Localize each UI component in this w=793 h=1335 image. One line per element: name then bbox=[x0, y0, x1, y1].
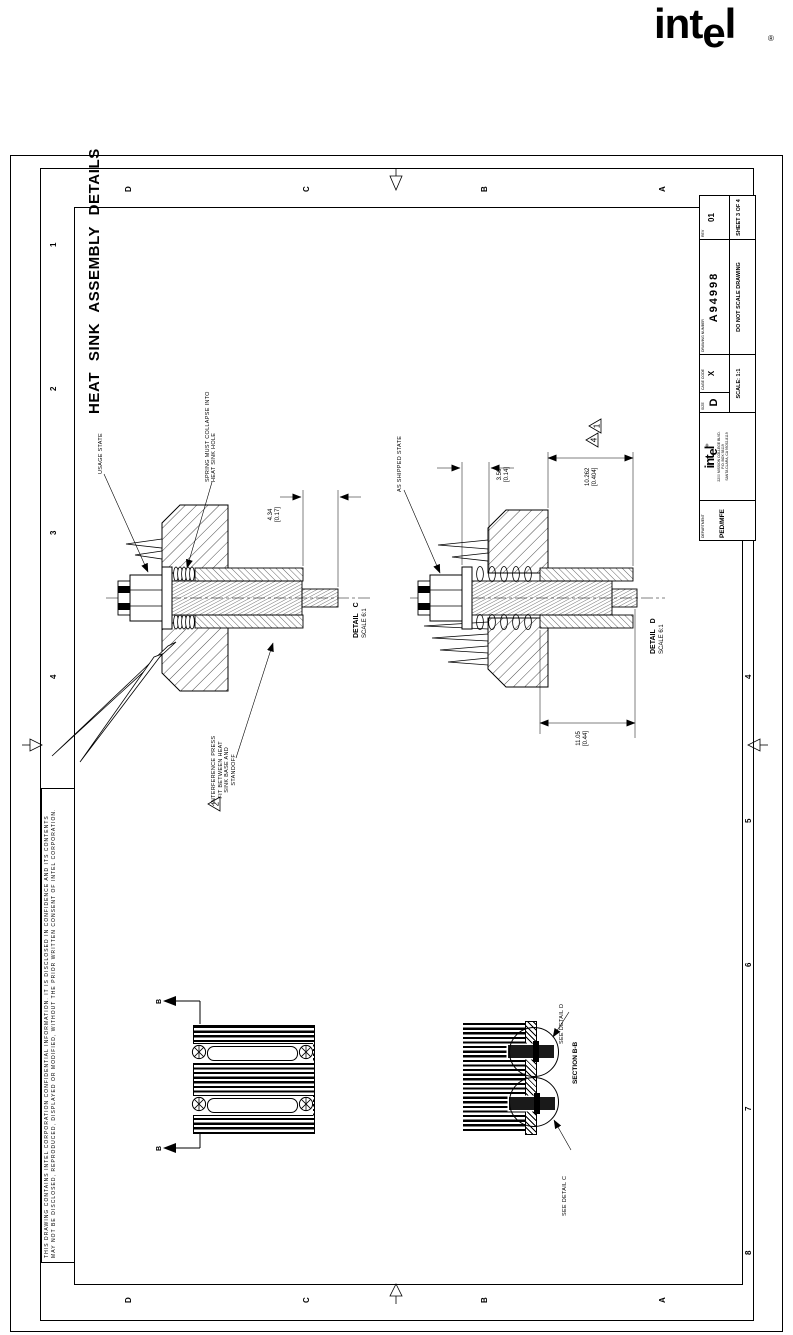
detail-c-title: DETAIL C SCALE 6:1 bbox=[353, 602, 369, 638]
title-block: DEPARTMENT PED/MFE intel® 2200 MISSION C… bbox=[699, 195, 756, 541]
cage-code-cell: CAGE CODE X bbox=[700, 354, 729, 392]
detail-d-screw-pin bbox=[612, 589, 637, 607]
detail-d-geometry: 1 4 bbox=[404, 419, 665, 738]
detail-c-name: DETAIL C bbox=[353, 602, 361, 638]
drawing-number-value: A94998 bbox=[708, 242, 720, 352]
screw-head-icon bbox=[191, 1044, 207, 1060]
drawing-number-label: DRAWING NUMBER bbox=[701, 242, 705, 352]
company-address: 2200 MISSION COLLEGE BLVD. P.O. BOX 5811… bbox=[717, 413, 730, 500]
detail-c-dim-mm: 4.34 bbox=[268, 507, 275, 522]
detail-d-title: DETAIL D SCALE 6:1 bbox=[650, 618, 666, 654]
detail-d-heatsink-base-upper bbox=[488, 510, 548, 573]
detail-d-fin bbox=[448, 658, 488, 665]
detail-d-leader-line bbox=[404, 490, 440, 573]
zone-letter-top-a: A bbox=[658, 186, 667, 192]
detail-c-head-slot bbox=[118, 586, 130, 593]
detail-d-dim-a-mm: 3.56 bbox=[497, 467, 504, 482]
screw-head-icon bbox=[191, 1096, 207, 1112]
title-block-department: DEPARTMENT PED/MFE bbox=[700, 500, 755, 540]
detail-d-screw-shaft bbox=[472, 581, 612, 615]
detail-d-name: DETAIL D bbox=[650, 618, 658, 654]
detail-d-dimension-b: 10.262 [0.404] bbox=[585, 468, 598, 486]
do-not-scale-cell: DO NOT SCALE DRAWING bbox=[730, 239, 755, 354]
drawing-number-cell: DRAWING NUMBER A94998 bbox=[700, 239, 729, 354]
detail-d-dimension-a: 3.56 [0.14] bbox=[497, 467, 510, 482]
screw-head-icon bbox=[298, 1044, 314, 1060]
detail-d-standoff-wall-bottom bbox=[540, 615, 633, 628]
zone-letter-top-b: B bbox=[480, 186, 489, 192]
cage-code-value: X bbox=[707, 357, 716, 390]
size-label: SIZE bbox=[701, 395, 705, 410]
detail-c-screw-flange bbox=[162, 567, 172, 629]
rev-value: 01 bbox=[707, 198, 716, 237]
detail-d-scale: SCALE 6:1 bbox=[658, 618, 666, 654]
detail-c-scale: SCALE 6:1 bbox=[361, 602, 369, 638]
zone-letter-top-c: C bbox=[302, 186, 311, 192]
detail-d-head-slot bbox=[418, 603, 430, 610]
tb-logo-e: e bbox=[705, 449, 720, 455]
detail-d-fin bbox=[424, 622, 488, 629]
note-flag-4-number: 4 bbox=[590, 437, 599, 442]
detail-d-fin bbox=[432, 634, 488, 641]
confidential-line-2: MAY NOT BE DISCLOSED, REPRODUCED, DISPLA… bbox=[51, 809, 58, 1259]
detail-c-fin bbox=[126, 539, 162, 548]
zone-letter-bottom-b: B bbox=[480, 1297, 489, 1303]
note-flag-1-number: 1 bbox=[593, 423, 602, 428]
detail-c-screw-shaft bbox=[172, 581, 302, 615]
registered-mark: ® bbox=[768, 34, 774, 43]
intel-logo-int: int bbox=[654, 0, 702, 47]
detail-c-standoff-wall-top bbox=[195, 568, 303, 581]
heatsink-channel-slot bbox=[207, 1046, 298, 1061]
zone-letter-bottom-a: A bbox=[658, 1297, 667, 1303]
usage-state-callout: USAGE STATE bbox=[98, 433, 104, 474]
interference-line1: INTERFERENCE PRESS bbox=[211, 736, 218, 804]
as-shipped-callout: AS SHIPPED STATE bbox=[397, 436, 403, 492]
title-block-intel-logo: intel® bbox=[702, 413, 717, 500]
size-value: D bbox=[708, 395, 720, 410]
detail-d-screw-head bbox=[430, 575, 462, 621]
screw-head-icon bbox=[298, 1096, 314, 1112]
zone-number-right-8: 8 bbox=[744, 1251, 753, 1255]
detail-d-dimension-c: 11.05 [0.44] bbox=[576, 731, 589, 746]
detail-c-screw-head bbox=[130, 575, 162, 621]
zone-letter-top-d: D bbox=[124, 186, 133, 192]
see-detail-d-label: SEE DETAIL D bbox=[559, 1004, 565, 1044]
sheet-cell: SHEET 3 OF 4 bbox=[730, 196, 755, 239]
heatsink-channel-slot bbox=[207, 1098, 298, 1113]
detail-d-fin bbox=[438, 540, 488, 549]
detail-d-fin bbox=[440, 646, 488, 653]
detail-d-dim-b-in: [0.404] bbox=[592, 468, 599, 486]
detail-c-dimension: 4.34 [0.17] bbox=[268, 507, 281, 522]
zone-number-right-6: 6 bbox=[744, 963, 753, 967]
zone-number-right-4: 4 bbox=[744, 675, 753, 679]
title-block-row2: SCALE: 1:1 DO NOT SCALE DRAWING SHEET 3 … bbox=[730, 196, 755, 412]
zone-number-right-5: 5 bbox=[744, 819, 753, 823]
sheet-title: HEAT SINK ASSEMBLY DETAILS bbox=[86, 148, 103, 414]
rev-label: REV bbox=[701, 198, 705, 237]
detail-d-dim-a-in: [0.14] bbox=[504, 467, 511, 482]
detail-d-head-slot bbox=[418, 586, 430, 593]
see-detail-c-label: SEE DETAIL C bbox=[562, 1176, 568, 1216]
detail-d-screw-flange bbox=[462, 567, 472, 629]
department-value: PED/MFE bbox=[719, 503, 726, 538]
zone-letter-bottom-d: D bbox=[124, 1297, 133, 1303]
department-label: DEPARTMENT bbox=[701, 503, 705, 538]
confidential-line-1: THIS DRAWING CONTAINS INTEL CORPORATION … bbox=[44, 809, 51, 1259]
detail-c-fin bbox=[80, 654, 162, 762]
title-block-grid: SIZE D CAGE CODE X DRAWING NUMBER A94998… bbox=[700, 196, 755, 412]
cage-code-label: CAGE CODE bbox=[701, 357, 705, 390]
detail-c-heatsink-base-upper bbox=[162, 505, 228, 573]
detail-c-view-circle bbox=[509, 1077, 559, 1127]
detail-d-view-circle bbox=[509, 1027, 559, 1077]
intel-logo-l: l bbox=[725, 0, 736, 47]
rev-cell: REV 01 bbox=[700, 196, 729, 239]
size-cell: SIZE D bbox=[700, 392, 729, 412]
detail-d-standoff-wall-top bbox=[540, 568, 633, 581]
spring-collapse-note: SPRING MUST COLLAPSE INTO HEAT SINK HOLE bbox=[205, 391, 217, 482]
zone-number-right-7: 7 bbox=[744, 1107, 753, 1111]
detail-d-dim-c-mm: 11.05 bbox=[576, 731, 583, 746]
intel-logo: intel bbox=[654, 0, 735, 48]
detail-d-drawing: 1 4 bbox=[380, 390, 690, 770]
title-block-company: intel® 2200 MISSION COLLEGE BLVD. P.O. B… bbox=[700, 412, 755, 500]
interference-note: INTERFERENCE PRESS FIT BETWEEN HEAT SINK… bbox=[211, 736, 237, 804]
detail-c-head-slot bbox=[118, 603, 130, 610]
interference-line4: STANDOFF bbox=[231, 736, 238, 804]
section-bb-label: SECTION B-B bbox=[572, 1042, 579, 1084]
zone-number-left-1: 1 bbox=[49, 243, 58, 247]
title-block-row1: SIZE D CAGE CODE X DRAWING NUMBER A94998… bbox=[700, 196, 730, 412]
zone-letter-bottom-c: C bbox=[302, 1297, 311, 1303]
detail-c-screw-pin bbox=[302, 589, 338, 607]
drawing-page: { "page": {"brand_i": "int", "brand_e": … bbox=[0, 0, 793, 1335]
detail-c-dim-in: [0.17] bbox=[275, 507, 282, 522]
detail-c-standoff-wall-bottom bbox=[195, 615, 303, 628]
spring-note-line2: HEAT SINK HOLE bbox=[211, 391, 217, 482]
scale-cell: SCALE: 1:1 bbox=[730, 354, 755, 412]
intel-logo-e: e bbox=[702, 9, 724, 56]
tb-logo-int: int bbox=[702, 455, 717, 468]
detail-d-dim-c-in: [0.44] bbox=[583, 731, 590, 746]
tb-logo-reg: ® bbox=[705, 445, 710, 447]
address-line3: SANTA CLARA, CA 95052-8119 bbox=[725, 413, 729, 500]
heatsink-top-view-fins bbox=[193, 1025, 315, 1134]
confidential-note: THIS DRAWING CONTAINS INTEL CORPORATION … bbox=[44, 809, 58, 1259]
detail-d-fin bbox=[452, 553, 488, 561]
detail-c-heatsink-base-lower bbox=[162, 623, 228, 691]
detail-d-dim-b-mm: 10.262 bbox=[585, 468, 592, 486]
